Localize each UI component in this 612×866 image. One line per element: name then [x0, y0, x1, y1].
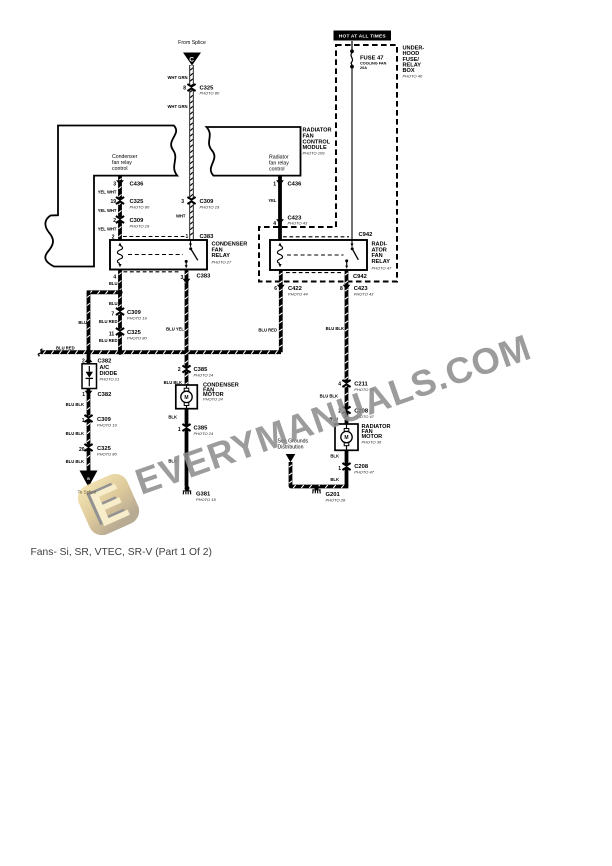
svg-text:C436: C436 [130, 181, 145, 187]
svg-text:PHOTO 19: PHOTO 19 [200, 204, 220, 209]
svg-text:BLU RED: BLU RED [56, 345, 75, 350]
svg-text:fan relay: fan relay [112, 160, 132, 166]
svg-text:BLU RED: BLU RED [258, 327, 277, 332]
svg-text:YEL WHT: YEL WHT [98, 227, 117, 232]
svg-text:Fans- Si, SR, VTEC, SR-V (Part: Fans- Si, SR, VTEC, SR-V (Part 1 Of 2) [31, 547, 212, 558]
svg-text:BLU: BLU [78, 320, 87, 325]
svg-text:3: 3 [181, 275, 184, 281]
svg-text:C: C [189, 57, 194, 64]
svg-text:PHOTO 44: PHOTO 44 [288, 291, 308, 296]
svg-text:C436: C436 [288, 181, 303, 187]
svg-text:PHOTO 21: PHOTO 21 [100, 377, 120, 382]
svg-text:RELAY: RELAY [372, 259, 391, 265]
svg-text:BLU BLK: BLU BLK [66, 402, 84, 407]
svg-text:3: 3 [113, 181, 116, 187]
svg-text:2: 2 [178, 367, 181, 373]
svg-text:PHOTO 80: PHOTO 80 [127, 335, 147, 340]
svg-text:PHOTO 109: PHOTO 109 [303, 151, 326, 156]
svg-text:C942: C942 [359, 232, 373, 238]
svg-text:8: 8 [340, 286, 343, 292]
svg-text:PHOTO 80: PHOTO 80 [200, 91, 220, 96]
svg-text:control: control [269, 167, 285, 173]
svg-text:4: 4 [113, 275, 116, 281]
svg-text:BLK: BLK [330, 477, 339, 482]
svg-text:20A: 20A [360, 66, 367, 70]
svg-text:BLU BLK: BLU BLK [66, 431, 84, 436]
svg-text:PHOTO 19: PHOTO 19 [196, 497, 216, 502]
svg-text:WHT GRN: WHT GRN [167, 75, 187, 80]
svg-text:BLK: BLK [330, 454, 339, 459]
svg-text:PHOTO 28: PHOTO 28 [326, 498, 346, 503]
svg-text:19: 19 [110, 199, 116, 205]
svg-text:1: 1 [82, 392, 85, 398]
svg-text:PHOTO 19: PHOTO 19 [127, 315, 147, 320]
svg-text:WHT GRN: WHT GRN [167, 104, 187, 109]
svg-text:YEL WHT: YEL WHT [98, 208, 117, 213]
svg-text:C942: C942 [353, 274, 367, 280]
svg-text:PHOTO 27: PHOTO 27 [212, 260, 232, 265]
svg-text:4: 4 [273, 221, 276, 227]
svg-text:20: 20 [79, 447, 85, 453]
svg-text:YEL: YEL [268, 198, 277, 203]
svg-text:1: 1 [82, 418, 85, 424]
svg-text:BLU RED: BLU RED [99, 338, 118, 343]
svg-text:PHOTO 80: PHOTO 80 [130, 204, 150, 209]
svg-text:PHOTO 24: PHOTO 24 [203, 397, 223, 402]
svg-text:1: 1 [273, 181, 276, 187]
svg-text:From Splice: From Splice [178, 40, 206, 46]
svg-text:3: 3 [181, 199, 184, 205]
svg-text:fan relay: fan relay [269, 161, 289, 167]
svg-text:PHOTO 43: PHOTO 43 [288, 220, 308, 225]
svg-text:C383: C383 [197, 274, 212, 280]
svg-text:C382: C382 [98, 358, 112, 364]
svg-text:Radiator: Radiator [269, 155, 289, 161]
svg-text:4: 4 [338, 381, 341, 387]
svg-text:To Splice: To Splice [78, 490, 97, 495]
svg-text:BLU BLK: BLU BLK [326, 326, 344, 331]
svg-text:PHOTO 36: PHOTO 36 [362, 440, 382, 445]
svg-text:1: 1 [338, 466, 341, 472]
svg-text:YEL WHT: YEL WHT [98, 190, 117, 195]
svg-text:PHOTO 43: PHOTO 43 [354, 291, 374, 296]
svg-text:6: 6 [274, 286, 277, 292]
svg-text:11: 11 [109, 331, 115, 337]
svg-text:M: M [344, 435, 348, 441]
svg-text:8: 8 [183, 85, 186, 91]
svg-text:PHOTO 19: PHOTO 19 [130, 223, 150, 228]
svg-text:WHT: WHT [176, 213, 186, 218]
svg-text:PHOTO 47: PHOTO 47 [372, 266, 392, 271]
svg-text:RELAY: RELAY [212, 253, 231, 259]
svg-text:BLU: BLU [109, 281, 118, 286]
svg-text:BLK: BLK [168, 414, 177, 419]
svg-text:BLU YEL: BLU YEL [166, 326, 184, 331]
svg-text:BLU BLK: BLU BLK [164, 380, 182, 385]
svg-text:BLU RED: BLU RED [99, 319, 118, 324]
svg-text:2: 2 [113, 218, 116, 224]
svg-text:Condenser: Condenser [112, 154, 138, 160]
svg-text:PHOTO 47: PHOTO 47 [354, 470, 374, 475]
svg-text:7: 7 [111, 311, 114, 317]
svg-text:M: M [184, 395, 188, 401]
svg-text:HOT AT ALL TIMES: HOT AT ALL TIMES [339, 34, 387, 40]
svg-text:FUSE 47: FUSE 47 [360, 56, 384, 62]
svg-text:PHOTO 24: PHOTO 24 [194, 372, 214, 377]
svg-text:PHOTO 40: PHOTO 40 [403, 74, 423, 79]
svg-text:1: 1 [178, 427, 181, 433]
svg-text:PHOTO 80: PHOTO 80 [97, 451, 117, 456]
svg-text:BLU: BLU [109, 301, 118, 306]
svg-text:C382: C382 [98, 392, 112, 398]
svg-text:control: control [112, 166, 128, 172]
svg-text:PHOTO 19: PHOTO 19 [97, 422, 117, 427]
svg-text:BLU BLK: BLU BLK [66, 459, 84, 464]
